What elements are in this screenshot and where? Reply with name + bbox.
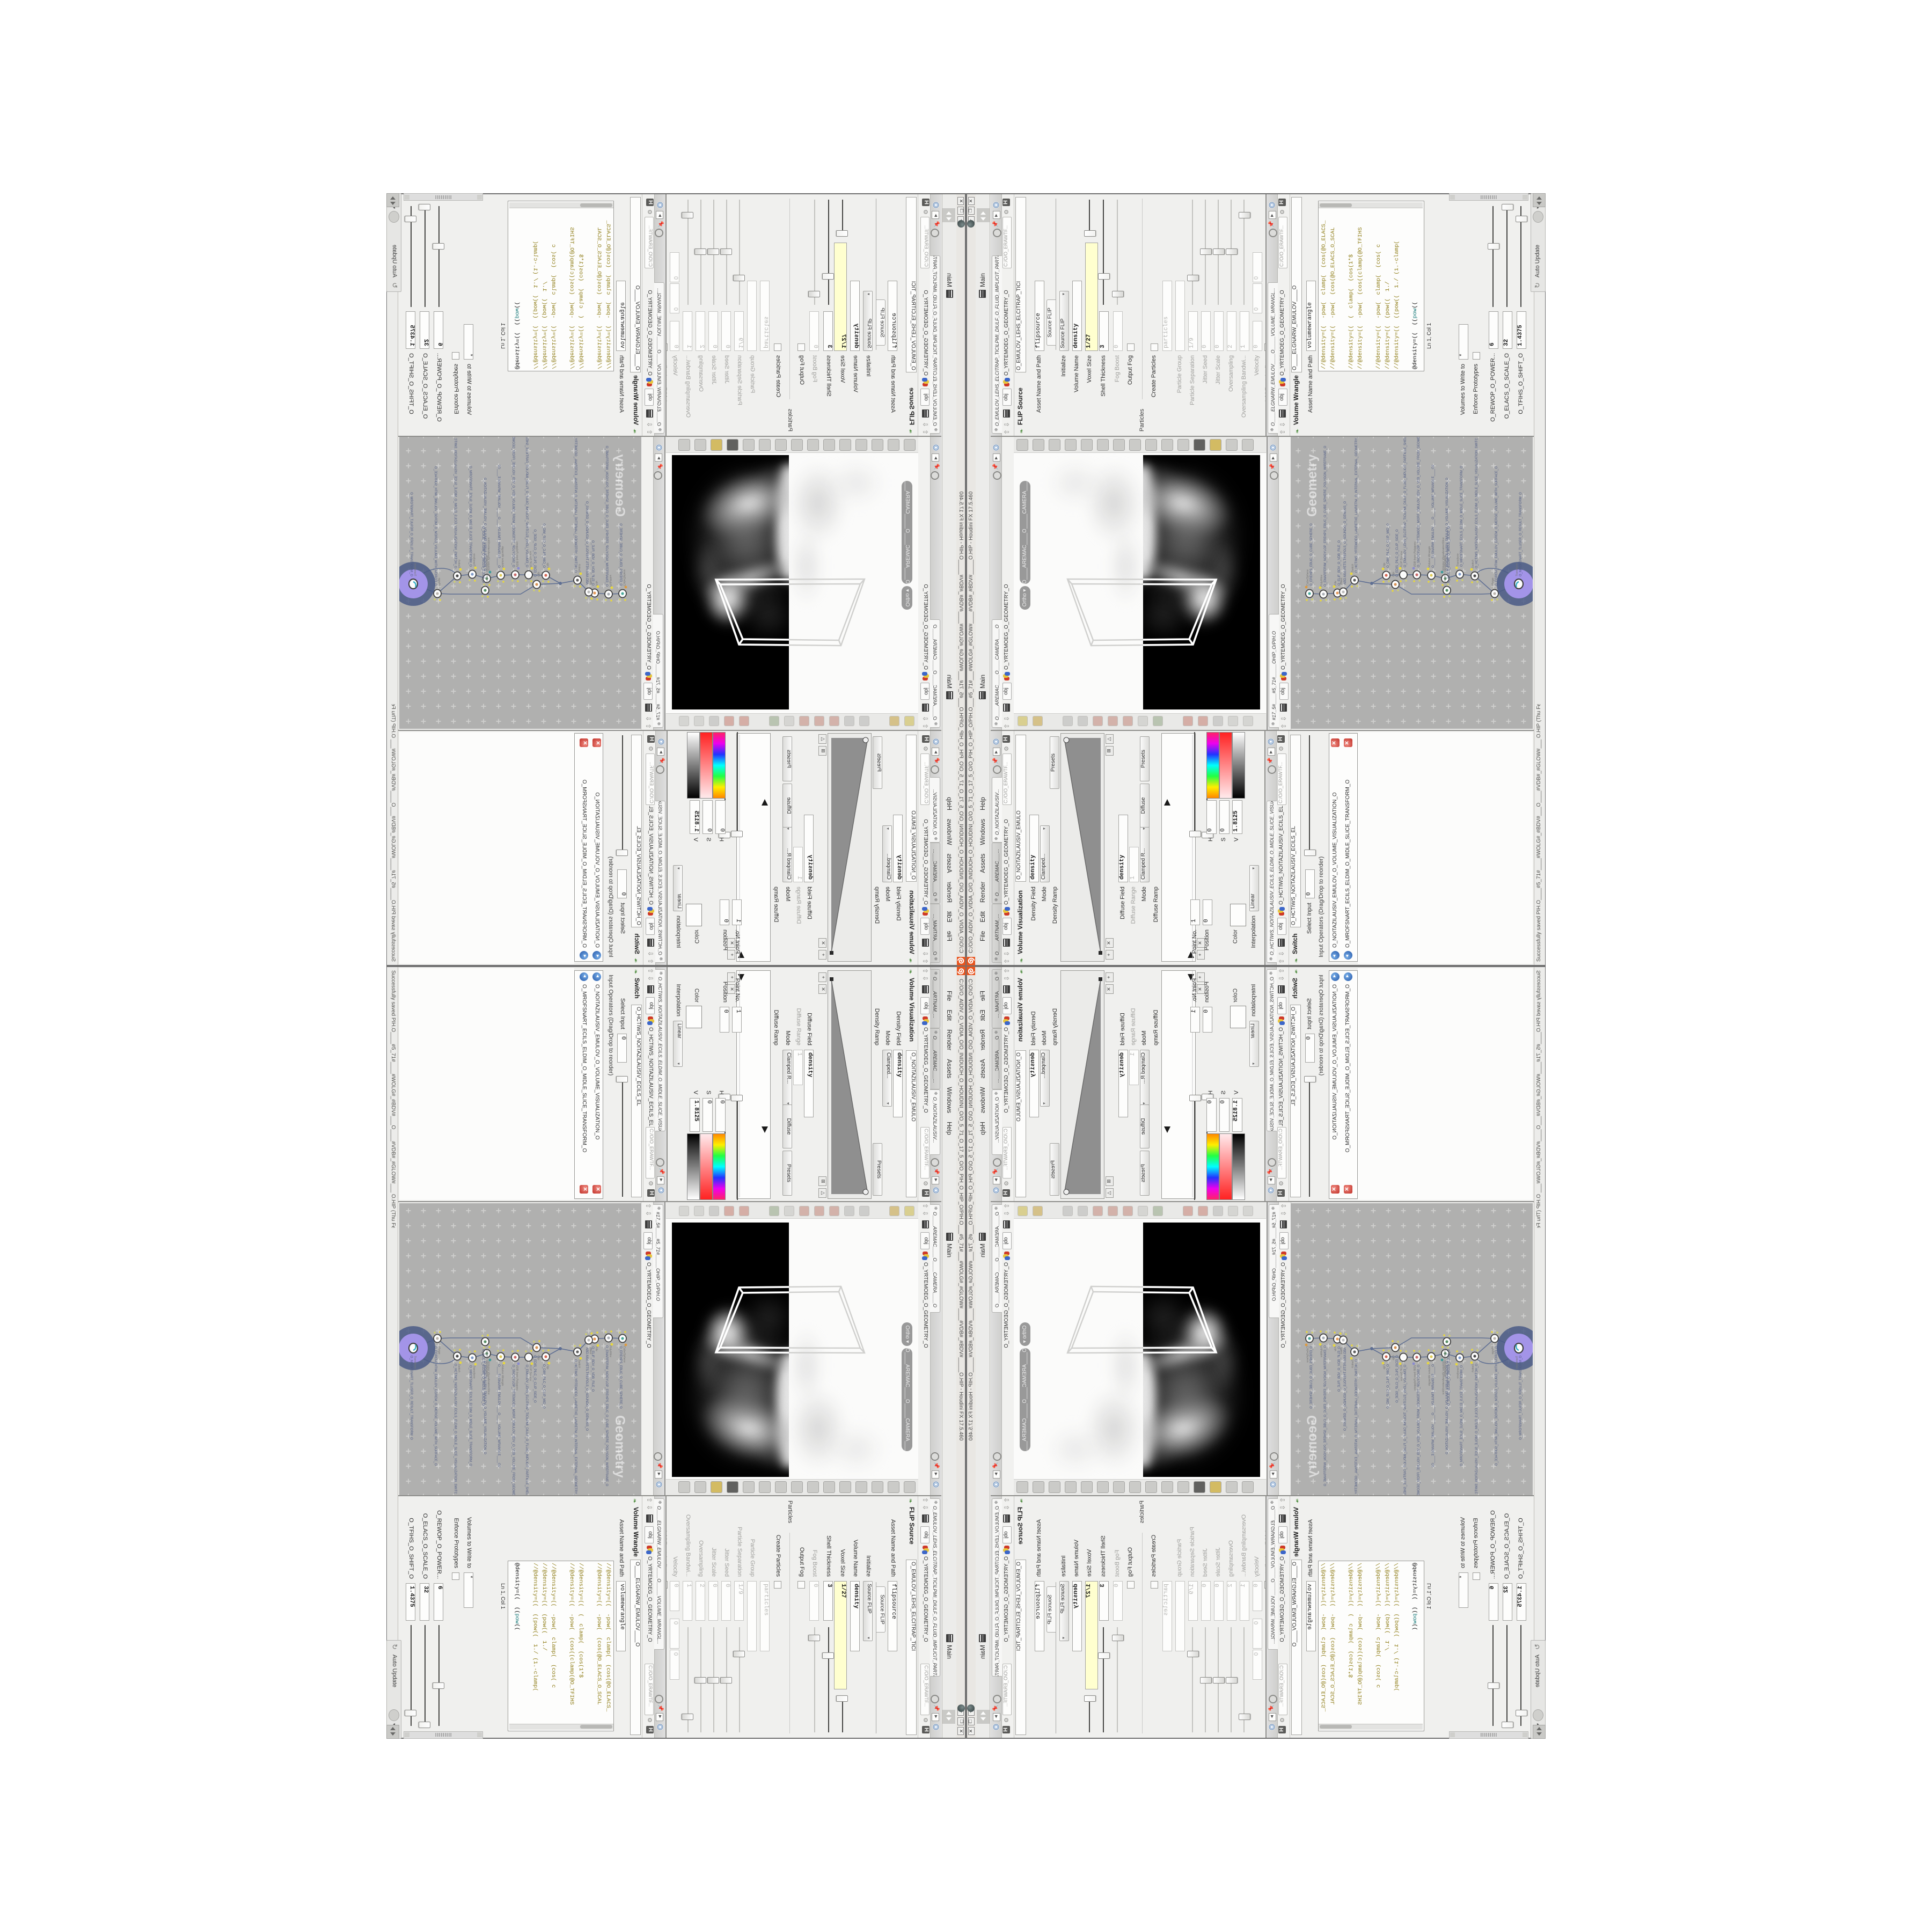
svg-text:O_HCTIWS_NOITAZILAUSIV_ECILS_E: O_HCTIWS_NOITAZILAUSIV_ECILS_ELDIM_O_MID…	[453, 437, 457, 568]
svg-text:ABD.M33.PETS.TREPOLS_O_SOUNDG_: ABD.M33.PETS.TREPOLS_O_SOUNDG_O_GENUSS_O	[1344, 501, 1347, 584]
svg-text:Transform: Transform	[413, 1356, 416, 1369]
svg-text:O_EGREM_HTIW_EMULOV_EGREM_O_ME: O_EGREM_HTIW_EMULOV_EGREM_O_MERGE_VOLUME…	[434, 1346, 437, 1466]
svg-text:Clip: Clip	[1383, 563, 1386, 568]
svg-text:CubeSphere: CubeSphere	[623, 1346, 626, 1363]
svg-text:O_MROFSNART_ECILS_ELDIM_O_MIDL: O_MROFSNART_ECILS_ELDIM_O_MIDLE_SLICE_TR…	[1460, 1365, 1463, 1466]
svg-text:FLIP Source: FLIP Source	[1400, 1365, 1403, 1381]
svg-text:FLIP Source: FLIP Source	[529, 551, 532, 567]
svg-text:Clip: Clip	[1392, 1355, 1395, 1360]
svg-text:O_HCTIWS_YRTEMOEG_LANRETXE_LAN: O_HCTIWS_YRTEMOEG_LANRETXE_LANRETNI_O_IN…	[574, 437, 577, 573]
svg-text:FLIP Source: FLIP Source	[529, 1365, 532, 1381]
svg-text:Volume Visualization: Volume Visualization	[1444, 555, 1447, 583]
svg-text:O_EREHPS_EBUC_O_CUBE_SPHERE_O: O_EREHPS_EBUC_O_CUBE_SPHERE_O	[1310, 1346, 1313, 1409]
svg-text:O_EGREM_HTIW_EMULOV_EGREM_O_ME: O_EGREM_HTIW_EMULOV_EGREM_O_MERGE_VOLUME…	[1495, 466, 1498, 586]
svg-text:File: File	[1334, 1346, 1337, 1351]
svg-text:Blast: Blast	[1340, 577, 1343, 584]
svg-text:O_MROFSNART_TLUSER_O_RESULT_TR: O_MROFSNART_TLUSER_O_RESULT_TRANSFORM_O	[409, 492, 413, 576]
svg-text:O_EMULOV_LEHS_ELCITRAP_TICILPM: O_EMULOV_LEHS_ELCITRAP_TICILPMI_DIULF_O_…	[525, 437, 528, 567]
svg-text:O_EMULOV_LEHS_ELCITRAP_TICILPM: O_EMULOV_LEHS_ELCITRAP_TICILPMI_DIULF_O_…	[1404, 1365, 1407, 1495]
svg-text:O_DIM_PILC_O_CLIP_MID_O: O_DIM_PILC_O_CLIP_MID_O	[1387, 523, 1390, 568]
svg-text:Volume Visualization: Volume Visualization	[485, 555, 488, 583]
svg-text:Merge: Merge	[437, 577, 441, 586]
svg-text:O_EMARFERIW_NOGYLOP_EREHPS_EBU: O_EMARFERIW_NOGYLOP_EREHPS_EBUC_O_CUBE_S…	[605, 445, 608, 587]
svg-text:O_SNOGYLOP_YRTEMOEG_MORF_EMULO: O_SNOGYLOP_YRTEMOEG_MORF_EMULOV_BDV_O_VD…	[511, 437, 515, 567]
svg-text:O_DIM_PILC_O_CLIP_MID_O: O_DIM_PILC_O_CLIP_MID_O	[1387, 1364, 1390, 1409]
svg-text:Switch: Switch	[1351, 564, 1355, 573]
svg-text:Merge: Merge	[1491, 1346, 1495, 1355]
svg-text:Transform: Transform	[472, 553, 475, 567]
svg-text:Geometry: Geometry	[1305, 1415, 1320, 1478]
svg-text:O_DIM_PILC_O_CLIP_MID_O: O_DIM_PILC_O_CLIP_MID_O	[542, 523, 545, 568]
svg-text:VDB from Polygons: VDB from Polygons	[1414, 541, 1417, 567]
svg-text:FLIP Source: FLIP Source	[1400, 551, 1403, 567]
svg-text:O_SNOGYLOP_YRTEMOEG_MORF_EMULO: O_SNOGYLOP_YRTEMOEG_MORF_EMULOV_BDV_O_VD…	[1417, 437, 1421, 567]
svg-text:Blast: Blast	[589, 577, 592, 584]
svg-text:Transform: Transform	[472, 1365, 475, 1379]
svg-text:Clip: Clip	[537, 572, 540, 577]
svg-text:Switch: Switch	[577, 1359, 581, 1368]
svg-text:O_HCTIWS_YRTEMOEG_LANRETXE_LAN: O_HCTIWS_YRTEMOEG_LANRETXE_LANRETNI_O_IN…	[1355, 1359, 1358, 1495]
svg-text:Switch: Switch	[457, 1364, 460, 1372]
svg-text:CubeSphere: CubeSphere	[623, 569, 626, 586]
svg-text:Geometry: Geometry	[612, 454, 627, 517]
svg-text:O_ECILS_ELDIM_O_MIDLE_SLICE_O: O_ECILS_ELDIM_O_MIDLE_SLICE_O	[1447, 1349, 1451, 1406]
svg-text:ABD.M33.PETS.TREPOLS_O_SOUNDG_: ABD.M33.PETS.TREPOLS_O_SOUNDG_O_GENUSS_O	[585, 501, 588, 584]
svg-text:VDB from Polygons: VDB from Polygons	[1414, 1365, 1417, 1391]
svg-text:O_HCTIWS_YRTEMOEG_LANRETXE_LAN: O_HCTIWS_YRTEMOEG_LANRETXE_LANRETNI_O_IN…	[1355, 437, 1358, 573]
svg-text:Volume Wrangle: Volume Wrangle	[1428, 1364, 1431, 1386]
svg-text:ABD.M33.PETS.TREPOLS_O_SOUNDG_: ABD.M33.PETS.TREPOLS_O_SOUNDG_O_GENUSS_O	[1344, 1348, 1347, 1431]
svg-text:Transform: Transform	[1516, 1356, 1519, 1369]
svg-text:O____ELGNARW_EMULOV____O_____V: O____ELGNARW_EMULOV____O_____VOLUME_WRAN…	[1432, 1364, 1435, 1468]
svg-text:O_EDIS_PILC_O_CLIP_SIDE_O: O_EDIS_PILC_O_CLIP_SIDE_O	[1396, 529, 1399, 577]
svg-text:Clip: Clip	[537, 1355, 540, 1360]
svg-text:CubeSphere: CubeSphere	[1306, 1346, 1309, 1363]
svg-text:O_SNOGYLOP_YRTEMOEG_MORF_EMULO: O_SNOGYLOP_YRTEMOEG_MORF_EMULOV_BDV_O_VD…	[511, 1365, 515, 1495]
svg-text:O_HCTIWS_NOITAZILAUSIV_ECILS_E: O_HCTIWS_NOITAZILAUSIV_ECILS_ELDIM_O_MID…	[1475, 1364, 1479, 1495]
svg-text:Switch: Switch	[1351, 1359, 1355, 1368]
svg-text:Volume Visualization: Volume Visualization	[1444, 1349, 1447, 1377]
svg-text:PolyWire: PolyWire	[609, 575, 612, 587]
svg-text:Transform: Transform	[1457, 553, 1460, 567]
svg-text:O_ECILS_ELDIM_O_MIDLE_SLICE_O: O_ECILS_ELDIM_O_MIDLE_SLICE_O	[481, 1349, 485, 1406]
svg-text:CubeSphere: CubeSphere	[1306, 569, 1309, 586]
svg-text:O_MROFSNART_ECILS_ELDIM_O_MIDL: O_MROFSNART_ECILS_ELDIM_O_MIDLE_SLICE_TR…	[1460, 466, 1463, 567]
svg-text:O_EGREM_HTIW_EMULOV_EGREM_O_ME: O_EGREM_HTIW_EMULOV_EGREM_O_MERGE_VOLUME…	[434, 466, 437, 586]
svg-text:Volume Visualization: Volume Visualization	[485, 1349, 488, 1377]
svg-text:Merge: Merge	[1491, 577, 1495, 586]
svg-text:O_HCTIWS_NOITAZILAUSIV_ECILS_E: O_HCTIWS_NOITAZILAUSIV_ECILS_ELDIM_O_MID…	[1475, 437, 1479, 568]
svg-text:O____ELGNARW_EMULOV____O_____V: O____ELGNARW_EMULOV____O_____VOLUME_WRAN…	[497, 1364, 500, 1468]
svg-text:Volume Wrangle: Volume Wrangle	[501, 546, 504, 568]
svg-text:Switch: Switch	[457, 560, 460, 568]
svg-text:O_EDIS_PILC_O_CLIP_SIDE_O: O_EDIS_PILC_O_CLIP_SIDE_O	[1396, 1355, 1399, 1403]
svg-text:Geometry: Geometry	[1305, 454, 1320, 517]
svg-text:O_EREHPS_EBUC_O_CUBE_SPHERE_O: O_EREHPS_EBUC_O_CUBE_SPHERE_O	[1310, 523, 1313, 586]
svg-text:O_MROFSNART_TLUSER_O_RESULT_TR: O_MROFSNART_TLUSER_O_RESULT_TRANSFORM_O	[1519, 1356, 1523, 1440]
svg-text:ABD.M33.PETS.TREPOLS_O_SOUNDG_: ABD.M33.PETS.TREPOLS_O_SOUNDG_O_GENUSS_O	[585, 1348, 588, 1431]
svg-text:PolyWire: PolyWire	[609, 1345, 612, 1357]
svg-text:Volume Wrangle: Volume Wrangle	[1428, 546, 1431, 568]
svg-text:O_DIM_PILC_O_CLIP_MID_O: O_DIM_PILC_O_CLIP_MID_O	[542, 1364, 545, 1409]
svg-text:O_ECILS_ELDIM_O_MIDLE_SLICE_O: O_ECILS_ELDIM_O_MIDLE_SLICE_O	[1447, 526, 1451, 583]
svg-text:VDB from Polygons: VDB from Polygons	[515, 1365, 518, 1391]
svg-text:O_MROFSNART_TLUSER_O_RESULT_TR: O_MROFSNART_TLUSER_O_RESULT_TRANSFORM_O	[409, 1356, 413, 1440]
svg-text:VDB from Polygons: VDB from Polygons	[515, 541, 518, 567]
svg-text:O_MROFSNART_TLUSER_O_RESULT_TR: O_MROFSNART_TLUSER_O_RESULT_TRANSFORM_O	[1519, 492, 1523, 576]
svg-text:File: File	[595, 1346, 598, 1351]
svg-text:Transform: Transform	[413, 563, 416, 576]
svg-text:Blast: Blast	[589, 1348, 592, 1355]
svg-text:Blast: Blast	[1340, 1348, 1343, 1355]
svg-text:Clip: Clip	[1383, 1364, 1386, 1369]
svg-text:O_EMARFERIW_NOGYLOP_EREHPS_EBU: O_EMARFERIW_NOGYLOP_EREHPS_EBUC_O_CUBE_S…	[1324, 445, 1327, 587]
svg-text:O_MROFSNART_ECILS_ELDIM_O_MIDL: O_MROFSNART_ECILS_ELDIM_O_MIDLE_SLICE_TR…	[469, 1365, 472, 1466]
svg-text:PolyWire: PolyWire	[1320, 575, 1323, 587]
svg-text:Clip: Clip	[546, 563, 549, 568]
svg-text:O_HCTIWS_NOITAZILAUSIV_ECILS_E: O_HCTIWS_NOITAZILAUSIV_ECILS_ELDIM_O_MID…	[453, 1364, 457, 1495]
svg-text:O_EMULOV_LEHS_ELCITRAP_TICILPM: O_EMULOV_LEHS_ELCITRAP_TICILPMI_DIULF_O_…	[1404, 437, 1407, 567]
svg-text:Clip: Clip	[1392, 572, 1395, 577]
svg-text:O____ELGNARW_EMULOV____O_____V: O____ELGNARW_EMULOV____O_____VOLUME_WRAN…	[497, 464, 500, 568]
svg-text:File: File	[595, 581, 598, 586]
svg-text:File: File	[1334, 581, 1337, 586]
svg-text:O_HCTIWS_YRTEMOEG_LANRETXE_LAN: O_HCTIWS_YRTEMOEG_LANRETXE_LANRETNI_O_IN…	[574, 1359, 577, 1495]
svg-text:O_EDIS_PILC_O_CLIP_SIDE_O: O_EDIS_PILC_O_CLIP_SIDE_O	[533, 1355, 536, 1403]
svg-text:O_EGREM_HTIW_EMULOV_EGREM_O_ME: O_EGREM_HTIW_EMULOV_EGREM_O_MERGE_VOLUME…	[1495, 1346, 1498, 1466]
svg-text:O_EREHPS_EBUC_O_CUBE_SPHERE_O: O_EREHPS_EBUC_O_CUBE_SPHERE_O	[619, 523, 622, 586]
svg-text:Switch: Switch	[1472, 1364, 1475, 1372]
svg-text:O_SNOGYLOP_YRTEMOEG_MORF_EMULO: O_SNOGYLOP_YRTEMOEG_MORF_EMULOV_BDV_O_VD…	[1417, 1365, 1421, 1495]
svg-text:Merge: Merge	[437, 1346, 441, 1355]
svg-text:Clip: Clip	[546, 1364, 549, 1369]
svg-text:O_MROFSNART_ECILS_ELDIM_O_MIDL: O_MROFSNART_ECILS_ELDIM_O_MIDLE_SLICE_TR…	[469, 466, 472, 567]
svg-text:Volume Wrangle: Volume Wrangle	[501, 1364, 504, 1386]
svg-text:O____ELGNARW_EMULOV____O_____V: O____ELGNARW_EMULOV____O_____VOLUME_WRAN…	[1432, 464, 1435, 568]
svg-text:O_EMARFERIW_NOGYLOP_EREHPS_EBU: O_EMARFERIW_NOGYLOP_EREHPS_EBUC_O_CUBE_S…	[605, 1345, 608, 1487]
svg-text:Switch: Switch	[577, 564, 581, 573]
svg-text:Transform: Transform	[1516, 563, 1519, 576]
svg-text:O_EREHPS_EBUC_O_CUBE_SPHERE_O: O_EREHPS_EBUC_O_CUBE_SPHERE_O	[619, 1346, 622, 1409]
svg-text:O_EMULOV_LEHS_ELCITRAP_TICILPM: O_EMULOV_LEHS_ELCITRAP_TICILPMI_DIULF_O_…	[525, 1365, 528, 1495]
svg-text:Transform: Transform	[1457, 1365, 1460, 1379]
svg-text:O_ECILS_ELDIM_O_MIDLE_SLICE_O: O_ECILS_ELDIM_O_MIDLE_SLICE_O	[481, 526, 485, 583]
svg-text:O_EMARFERIW_NOGYLOP_EREHPS_EBU: O_EMARFERIW_NOGYLOP_EREHPS_EBUC_O_CUBE_S…	[1324, 1345, 1327, 1487]
svg-text:Switch: Switch	[1472, 560, 1475, 568]
svg-text:PolyWire: PolyWire	[1320, 1345, 1323, 1357]
svg-text:O_EDIS_PILC_O_CLIP_SIDE_O: O_EDIS_PILC_O_CLIP_SIDE_O	[533, 529, 536, 577]
svg-text:Geometry: Geometry	[612, 1415, 627, 1478]
